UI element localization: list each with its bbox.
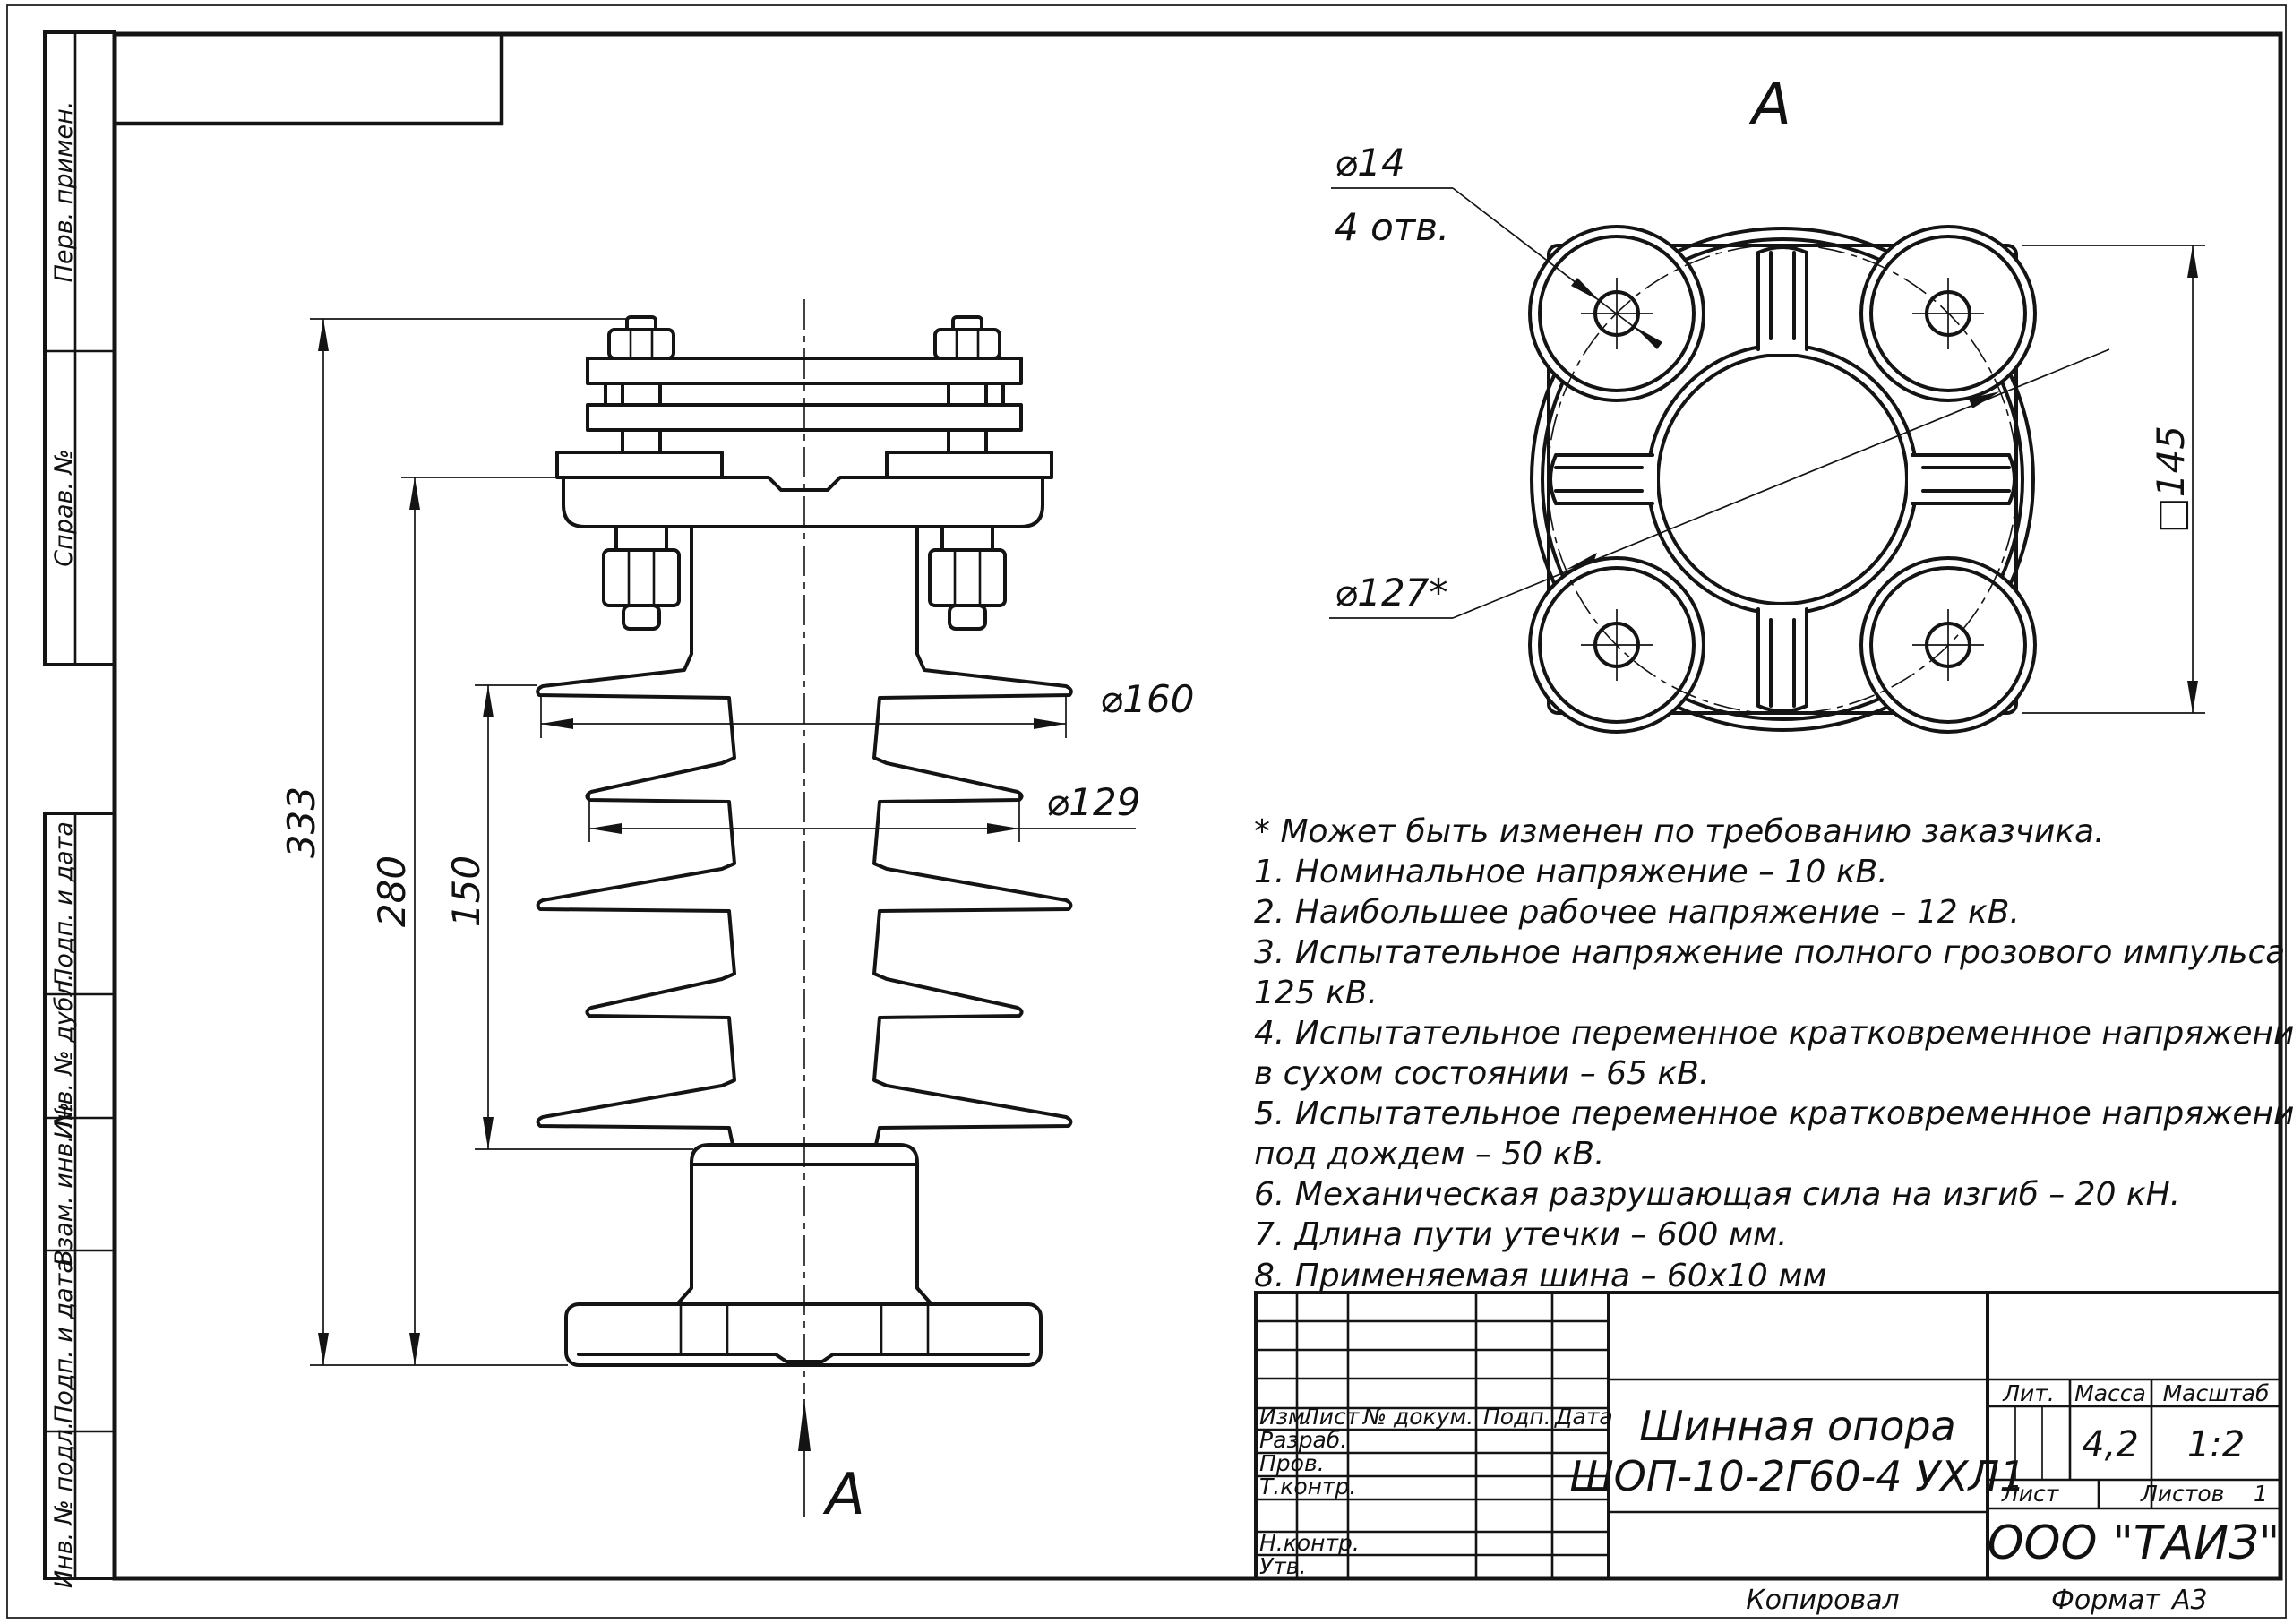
drawing-sheet: Перв. примен. Справ. № Подп. и дата Инв.… [0,0,2293,1624]
section-arrow-head [798,1399,811,1451]
mass-label: Масса [2074,1380,2146,1406]
bolt-head-left [609,330,674,358]
note-line: 6. Механическая разрушающая сила на изги… [1254,1176,2180,1213]
top-view-title: А [1748,72,1791,138]
lit-label: Лит. [2002,1380,2055,1406]
clamp-flange-left [557,452,722,477]
lower-nut-left [604,550,679,606]
lower-stud-left [616,527,666,552]
col-docnum: № докум. [1361,1404,1473,1430]
format-value: А3 [2170,1585,2208,1616]
strip-podp-data-1: Подп. и дата [50,821,78,986]
copied-label: Копировал [1746,1585,1899,1616]
note-line: 5. Испытательное переменное кратковремен… [1254,1096,2293,1132]
square-dimension: □145 [2022,245,2205,713]
col-data: Дата [1554,1404,1613,1430]
row-nkontr: Н.контр. [1259,1530,1360,1556]
strip-perv-primen: Перв. примен. [50,101,78,283]
note-line: под дождем – 50 кВ. [1254,1136,1604,1173]
note-line: 7. Длина пути утечки – 600 мм. [1254,1216,1788,1253]
doc-title-line1: Шинная опора [1639,1402,1955,1450]
note-line: * Может быть изменен по требованию заказ… [1254,813,2105,850]
col-list: Лист [1301,1404,1361,1430]
mass-value: 4,2 [2082,1424,2139,1465]
dim-d160: ⌀160 [1100,677,1194,721]
lower-stud-right [942,527,992,552]
left-strips: Перв. примен. Справ. № Подп. и дата Инв.… [45,32,115,1588]
note-line: 1. Номинальное напряжение – 10 кВ. [1254,854,1888,890]
row-razrab: Разраб. [1259,1427,1347,1453]
col-podp: Подп. [1483,1404,1551,1430]
note-line: 3. Испытательное напряжение полного гроз… [1254,934,2293,971]
bolt-head-right [935,330,1000,358]
format-label: Формат [2051,1585,2161,1616]
dim-4-holes: 4 отв. [1335,205,1449,249]
sheets-label: Листов [2140,1481,2224,1507]
lower-nut-right [930,550,1005,606]
row-prov: Пров. [1259,1450,1325,1476]
note-line: в сухом состоянии – 65 кВ. [1254,1055,1709,1092]
note-line: 8. Применяемая шина – 60x10 мм [1254,1258,1827,1294]
strip-vzam-inv: Взам. инв. № [50,1102,78,1266]
note-line: 125 кВ. [1254,975,1378,1011]
top-view-A: А [1329,72,2205,732]
front-view-insulator: А [537,299,1071,1528]
dim-333: 333 [279,786,323,858]
clamp-flange-right [887,452,1052,477]
top-left-stamp-box [115,34,502,124]
strip-sprav-n: Справ. № [50,449,78,566]
sheet-label: Лист [2001,1481,2060,1507]
sheets-value: 1 [2254,1481,2268,1507]
lower-tip-right [949,606,985,629]
engineering-drawing-canvas: Перв. примен. Справ. № Подп. и дата Инв.… [0,0,2293,1624]
cap-body [563,477,1043,527]
dim-d127: ⌀127* [1335,571,1447,614]
dim-280: 280 [370,855,414,927]
scale-label: Масштаб [2163,1380,2270,1406]
scale-value: 1:2 [2187,1424,2245,1465]
company-name: ООО "ТАИЗ" [1988,1517,2280,1570]
dim-square-145: □145 [2149,425,2193,533]
strip-podp-data-2: Подп. и дата [50,1259,78,1423]
dim-150: 150 [444,855,488,927]
doc-title-line2: ШОП-10-2Г60-4 УХЛ1 [1569,1452,2025,1500]
row-tkontr: Т.контр. [1259,1474,1356,1499]
section-arrow-label: А [822,1462,865,1528]
dim-d129: ⌀129 [1046,780,1140,824]
note-line: 2. Наибольшее рабочее напряжение – 12 кВ… [1254,894,2020,931]
lower-tip-left [623,606,659,629]
note-line: 4. Испытательное переменное кратковремен… [1254,1015,2293,1052]
row-utv: Утв. [1259,1553,1306,1579]
dim-d14: ⌀14 [1335,141,1405,185]
title-block: Изм. Лист № докум. Подп. Дата Разраб. Пр… [1256,1293,2280,1616]
strip-inv-podl: Инв. № подл. [50,1422,78,1588]
technical-notes: * Может быть изменен по требованию заказ… [1254,813,2293,1294]
